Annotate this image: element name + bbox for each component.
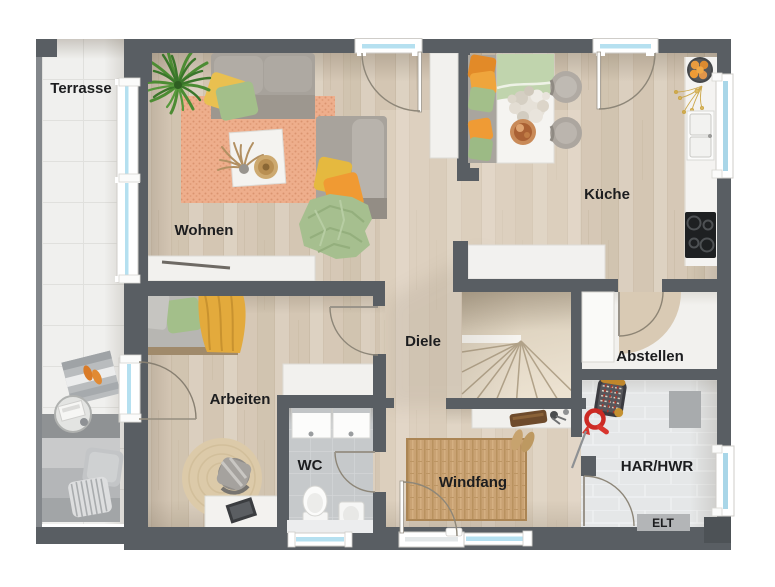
svg-text:Terrasse: Terrasse — [50, 80, 111, 97]
svg-text:Windfang: Windfang — [439, 474, 507, 491]
svg-text:HAR/HWR: HAR/HWR — [621, 458, 694, 475]
svg-text:WC: WC — [298, 457, 323, 474]
svg-text:Abstellen: Abstellen — [616, 348, 684, 365]
svg-text:ELT: ELT — [652, 516, 674, 530]
svg-text:Küche: Küche — [584, 186, 630, 203]
svg-text:Arbeiten: Arbeiten — [210, 391, 271, 408]
svg-text:Diele: Diele — [405, 333, 441, 350]
svg-text:Wohnen: Wohnen — [175, 222, 234, 239]
